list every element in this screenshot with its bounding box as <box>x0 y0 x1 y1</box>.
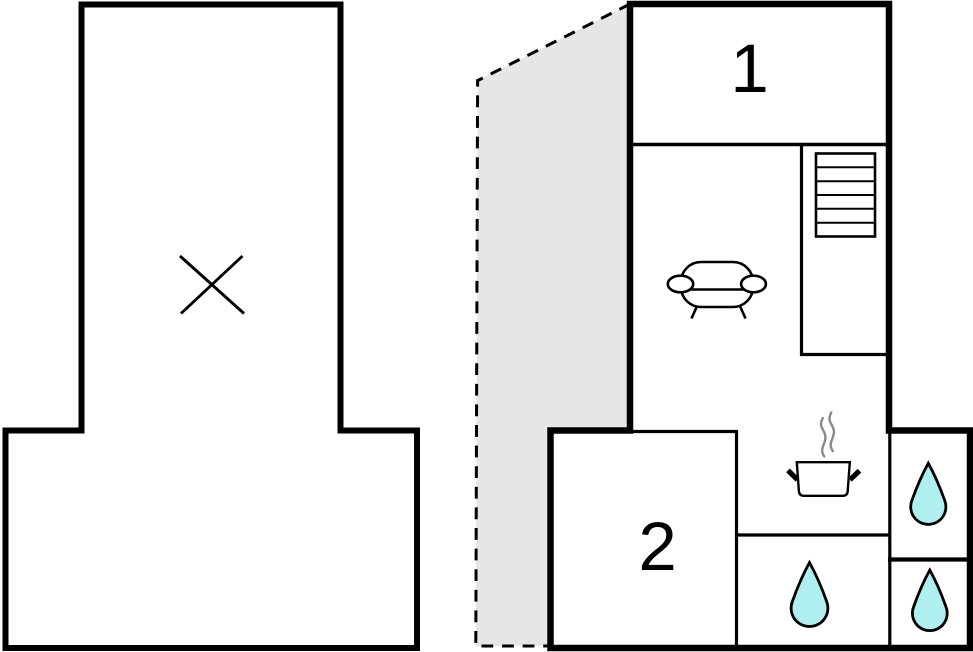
svg-text:2: 2 <box>638 508 676 585</box>
svg-text:1: 1 <box>730 30 768 107</box>
